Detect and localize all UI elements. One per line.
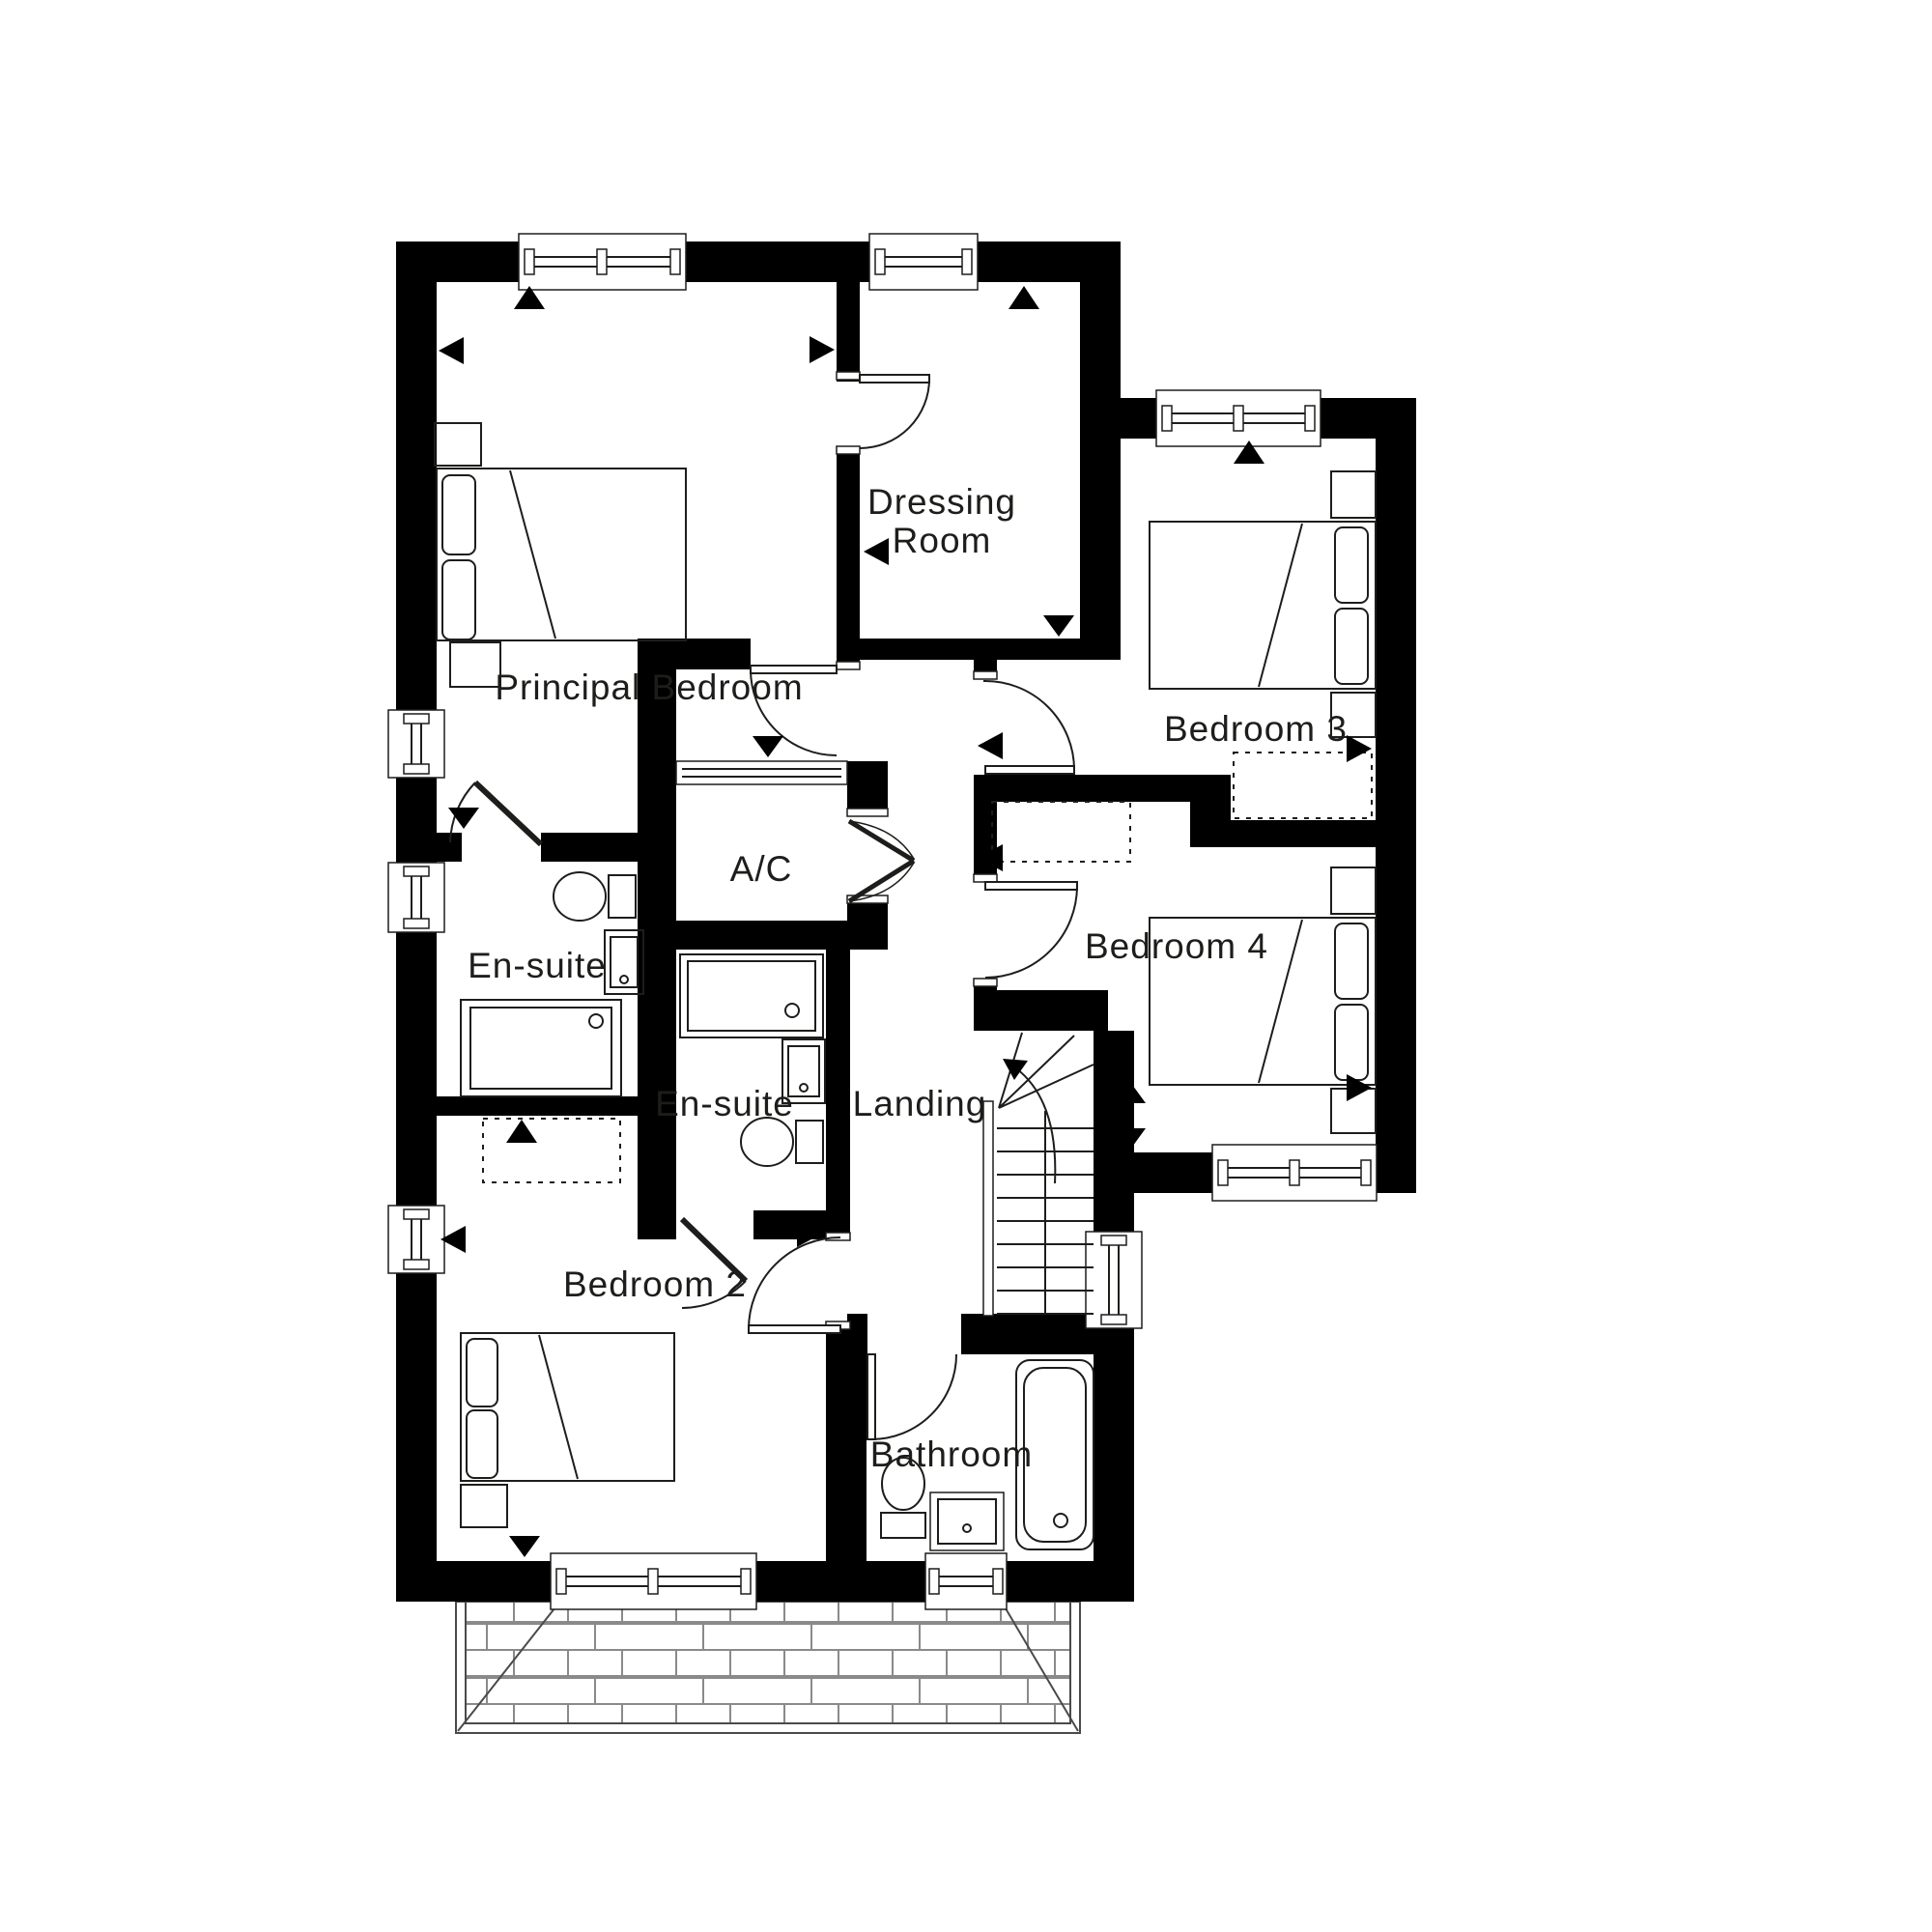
door-leaf: [867, 1354, 875, 1439]
partition-screen: [676, 761, 847, 784]
window-bathroom-bottom: [925, 1553, 1007, 1609]
floor-plan-svg: Principal Bedroom Dressing Room Bedroom …: [0, 0, 1932, 1932]
wall-divider-principal-dressing-lower: [837, 454, 860, 669]
brick-pattern: [466, 1602, 1070, 1723]
window-bedroom3-top: [1156, 390, 1321, 446]
door-leaf: [985, 882, 1077, 890]
room-label-ensuite-principal: En-suite: [468, 946, 607, 985]
floor-plan-page: Principal Bedroom Dressing Room Bedroom …: [0, 0, 1932, 1932]
wall-divider-bed3-bed4-left: [974, 775, 1227, 802]
wall-right-ne: [1376, 398, 1416, 1193]
wall-divider-bed3-bed4-step: [1190, 775, 1231, 847]
wall-ensuite1-bottom: [437, 1096, 676, 1116]
room-label-ensuite-bedroom2: En-suite: [655, 1084, 794, 1123]
room-label-dressing-line1: Dressing: [867, 482, 1016, 522]
door-leaf: [749, 1325, 840, 1333]
room-label-bedroom3: Bedroom 3: [1164, 709, 1348, 749]
wall-dressing-bottom: [860, 639, 1121, 660]
window-bedroom2-bottom: [551, 1553, 756, 1609]
basin: [930, 1492, 1004, 1550]
wall-ensuite1-top-right: [541, 833, 638, 862]
wall-ac-right-lower: [847, 903, 888, 950]
wall-stairs-top: [974, 990, 1108, 1031]
door-leaf: [860, 375, 929, 383]
brick-canopy: [456, 1602, 1080, 1733]
window-principal-top: [519, 234, 686, 290]
window-principal-left: [388, 710, 444, 778]
window-bedroom2-left: [388, 1206, 444, 1273]
stair-railing: [983, 1101, 993, 1316]
wall-divider-principal-dressing-upper: [837, 282, 860, 382]
room-label-dressing-line2: Room: [893, 521, 992, 560]
wall-ensuite2-right: [826, 950, 850, 1239]
wall-bathroom-top-right: [961, 1314, 1094, 1354]
partition-screen-ac-top: [676, 761, 847, 784]
door-leaf: [985, 766, 1074, 774]
wall-bottom: [396, 1561, 1134, 1602]
wall-bedroom2-bathroom: [826, 1354, 867, 1561]
window-stairs-right: [1086, 1232, 1142, 1328]
room-label-bathroom: Bathroom: [870, 1435, 1033, 1474]
wall-divider-bed3-bed4-right: [1231, 820, 1376, 847]
wall-ac-bottom: [638, 921, 850, 950]
window-bedroom4-bottom: [1212, 1145, 1377, 1201]
window-ensuite1-left: [388, 863, 444, 932]
window-dressing-top: [869, 234, 978, 290]
wall-step-column: [1080, 241, 1121, 660]
room-label-landing: Landing: [853, 1084, 987, 1123]
room-label-ac: A/C: [730, 849, 793, 889]
wall-top-nw: [396, 241, 1121, 282]
room-label-bedroom2: Bedroom 2: [563, 1264, 747, 1304]
wall-bathroom-top-left: [847, 1314, 867, 1354]
wall-ensuite1-top-left: [437, 833, 462, 862]
room-label-principal-bedroom: Principal Bedroom: [495, 668, 803, 707]
room-label-bedroom4: Bedroom 4: [1085, 926, 1268, 966]
